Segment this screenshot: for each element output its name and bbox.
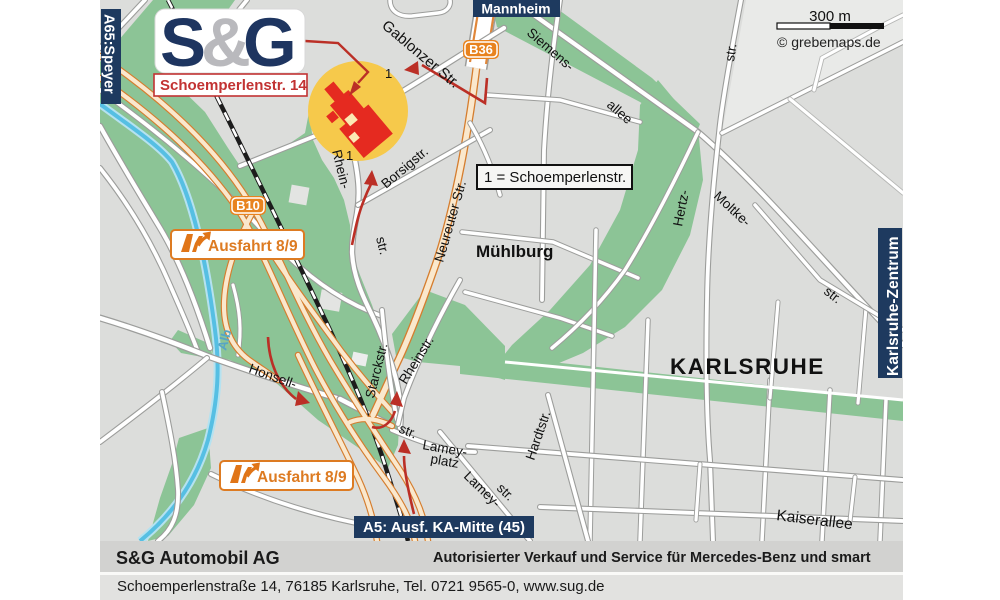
svg-text:str.: str. (722, 42, 739, 62)
svg-text:B36: B36 (469, 42, 493, 57)
svg-text:Mühlburg: Mühlburg (476, 242, 553, 261)
svg-text:Schoemperlenstraße 14, 76185 K: Schoemperlenstraße 14, 76185 Karlsruhe, … (117, 578, 605, 595)
svg-text:1: 1 (385, 66, 392, 81)
svg-text:Autorisierter Verkauf und Serv: Autorisierter Verkauf und Service für Me… (433, 550, 871, 566)
svg-text:1 = Schoemperlenstr.: 1 = Schoemperlenstr. (484, 169, 626, 186)
svg-text:Ausfahrt 8/9: Ausfahrt 8/9 (257, 469, 347, 486)
svg-text:KARLSRUHE: KARLSRUHE (670, 354, 825, 379)
svg-text:G: G (243, 4, 297, 81)
svg-text:A65:Speyer: A65:Speyer (101, 14, 117, 94)
svg-text:Karlsruhe-Zentrum: Karlsruhe-Zentrum (885, 236, 902, 376)
svg-text:S&G Automobil AG: S&G Automobil AG (116, 548, 280, 568)
svg-text:Mannheim: Mannheim (481, 1, 550, 17)
svg-text:S: S (160, 4, 206, 81)
svg-text:Ausfahrt 8/9: Ausfahrt 8/9 (208, 238, 298, 255)
svg-text:A5: Ausf. KA-Mitte (45): A5: Ausf. KA-Mitte (45) (363, 519, 525, 536)
svg-text:Schoemperlenstr. 14: Schoemperlenstr. 14 (160, 77, 307, 94)
svg-text:© grebemaps.de: © grebemaps.de (777, 34, 881, 50)
svg-text:B10: B10 (236, 198, 260, 213)
